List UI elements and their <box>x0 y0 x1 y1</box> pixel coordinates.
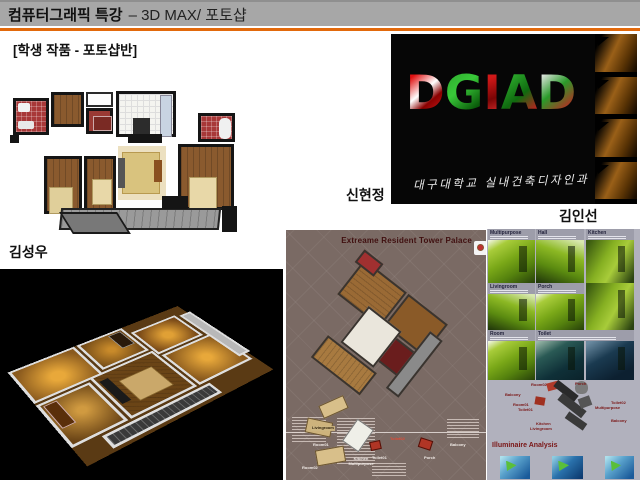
poster-label-balcony: Balcony <box>450 443 466 448</box>
poster-logo-icon <box>474 241 486 255</box>
gallery-label-multipurpose: Multipurpose <box>488 229 535 240</box>
artist-name-kim-in-sun: 김인선 <box>559 206 598 226</box>
film-frame <box>595 77 637 120</box>
analysis-thumbnail <box>552 456 583 479</box>
poster-text-block <box>447 418 479 438</box>
gallery-image-toilet2 <box>586 341 634 380</box>
floorplan-2d-image <box>10 90 238 242</box>
poster-floorplan <box>295 259 452 416</box>
gallery-label-kitchen: Kitchen <box>586 229 634 240</box>
diagram-label-toilet01: Toilet01 <box>518 407 533 412</box>
gallery-image-toilet1 <box>536 341 584 380</box>
tower-palace-poster: Extreame Resident Tower Palace Livingroo… <box>286 230 486 480</box>
film-strip-graphic <box>595 34 637 204</box>
film-frame <box>595 162 637 205</box>
accent-divider <box>0 28 640 31</box>
slide-title-sub: – 3D MAX/ 포토샵 <box>129 4 247 25</box>
gallery-label-livingroom: Livingroom <box>488 283 535 294</box>
plan-wall <box>128 134 162 143</box>
plan-bedroom-left2 <box>84 156 116 213</box>
diagram-piece <box>534 396 545 406</box>
slide-title-main: 컴퓨터그래픽 특강 <box>8 4 123 25</box>
slide-canvas: 컴퓨터그래픽 특강 – 3D MAX/ 포토샵 [학생 작품 - 포토샵반] 김… <box>0 0 640 480</box>
plan-tv-cabinet <box>154 160 162 182</box>
diagram-label-balcony-2: Balcony <box>611 418 627 423</box>
dgiad-letter: D <box>537 70 576 117</box>
poster-part-porch <box>418 437 433 451</box>
dgiad-logo-image: DGIAD 대구대학교 실내건축디자인과 <box>391 34 637 204</box>
plan-entry <box>86 92 113 107</box>
diagram-label-balcony: Balcony <box>505 392 521 397</box>
artist-name-kim-sung-woo: 김성우 <box>9 242 48 262</box>
plan-bathroom-left <box>13 98 49 135</box>
poster-label-toilet02: Toilet02 <box>390 437 405 442</box>
plan-wall <box>10 135 19 143</box>
gallery-image-multipurpose <box>488 240 535 283</box>
plan-kitchen <box>116 91 176 137</box>
gallery-label-toilet: Toilet <box>536 330 634 341</box>
plan-bedroom-left1 <box>44 156 82 214</box>
exploded-plan-diagram: Room02 Porch Balcony Room01 Toilet01 Toi… <box>487 380 640 442</box>
isometric-3d-image: 윤서경 <box>0 269 283 480</box>
dgiad-letter: I <box>483 70 501 117</box>
slide-title-bar: 컴퓨터그래픽 특강 – 3D MAX/ 포토샵 <box>0 0 640 26</box>
poster-text-block <box>372 463 406 476</box>
plan-wall <box>162 196 188 209</box>
poster-label-porch: Porch <box>424 456 435 461</box>
diagram-label-porch: Porch <box>575 381 586 386</box>
gallery-image-hall <box>536 240 584 283</box>
poster-label-kitchen-multipurpose: Kitchen Multipurpose <box>348 457 374 467</box>
gallery-label-room: Room <box>488 330 535 341</box>
diagram-piece <box>578 395 593 409</box>
plan-livingroom <box>118 146 166 200</box>
gallery-image-livingroom <box>488 294 535 330</box>
gallery-label-hall: Hall <box>536 229 584 240</box>
artist-name-shin-hyun-jung: 신현정 <box>346 185 385 205</box>
poster-label-livingroom: Livingroom <box>311 426 335 431</box>
dgiad-letter: G <box>445 70 484 117</box>
dgiad-logo-text: DGIAD <box>393 70 589 117</box>
plan-sofa <box>118 158 125 188</box>
dgiad-letter: D <box>406 70 445 117</box>
film-frame <box>595 119 637 162</box>
isometric-apartment <box>8 306 274 466</box>
poster-label-room02: Room02 <box>302 466 318 471</box>
section-heading: [학생 작품 - 포토샵반] <box>13 39 137 59</box>
dgiad-script-text: 대구대학교 실내건축디자인과 <box>413 171 590 193</box>
gallery-image-kitchen <box>586 240 634 283</box>
diagram-label-multipurpose: Multipurpose <box>595 405 620 410</box>
dgiad-letter: A <box>501 70 537 117</box>
analysis-thumbnail <box>605 456 634 479</box>
gallery-image-room <box>488 341 535 380</box>
plan-wall <box>222 206 237 232</box>
poster-label-toilet01: Toilet01 <box>372 456 387 461</box>
plan-utility-room <box>86 108 113 134</box>
poster-label-room01: Room01 <box>313 443 329 448</box>
gallery-image-porch <box>536 294 584 330</box>
illuminaire-analysis-heading: Illuminaire Analysis <box>492 442 558 449</box>
analysis-thumbnail <box>500 456 530 479</box>
poster-part-toilet <box>369 440 382 451</box>
gallery-label-porch: Porch <box>536 283 584 294</box>
diagram-label-livingroom: Livingroom <box>530 426 552 431</box>
film-frame <box>595 34 637 77</box>
diagram-label-room02: Room02 <box>531 382 547 387</box>
plan-bathroom-right <box>198 113 235 142</box>
plan-room-topleft <box>51 92 84 127</box>
poster-title: Extreame Resident Tower Palace <box>341 236 472 245</box>
gallery-image-extra <box>586 283 634 330</box>
render-gallery-panel: Multipurpose Hall Kitchen Livingroom Por… <box>487 229 640 480</box>
